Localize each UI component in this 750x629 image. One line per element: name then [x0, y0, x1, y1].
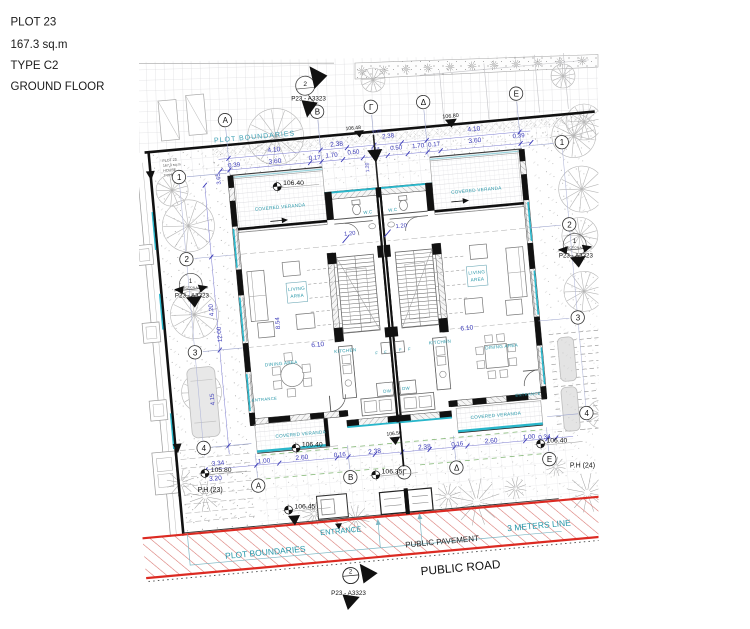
svg-text:B: B	[315, 108, 320, 117]
svg-text:4.10: 4.10	[267, 146, 281, 154]
svg-text:106.40: 106.40	[283, 180, 304, 187]
svg-text:B: B	[348, 473, 353, 482]
svg-text:2: 2	[567, 220, 572, 229]
svg-text:105.80: 105.80	[211, 467, 232, 474]
svg-text:P23 - A3323: P23 - A3323	[291, 95, 326, 102]
svg-text:E: E	[547, 455, 552, 464]
svg-text:0.39: 0.39	[512, 132, 525, 140]
svg-text:2: 2	[184, 255, 189, 264]
svg-text:2.60: 2.60	[295, 454, 309, 462]
svg-text:Γ: Γ	[369, 103, 374, 112]
svg-text:106.45: 106.45	[294, 503, 315, 510]
svg-text:1: 1	[177, 173, 182, 182]
svg-text:4: 4	[202, 444, 207, 453]
svg-text:3.60: 3.60	[468, 137, 482, 145]
svg-text:P23 - A3323: P23 - A3323	[331, 590, 366, 597]
svg-text:12.00: 12.00	[216, 326, 224, 343]
svg-text:3: 3	[193, 348, 198, 357]
svg-text:106.35: 106.35	[382, 468, 403, 475]
svg-text:6.10: 6.10	[311, 341, 325, 349]
svg-text:106.40: 106.40	[547, 437, 568, 444]
svg-text:E: E	[514, 90, 519, 99]
svg-text:4.10: 4.10	[467, 126, 481, 134]
svg-text:DW: DW	[402, 385, 411, 391]
svg-text:0.50: 0.50	[347, 149, 360, 157]
svg-text:P.H (23): P.H (23)	[198, 487, 223, 494]
svg-text:1.70: 1.70	[412, 142, 425, 150]
svg-text:W.C: W.C	[388, 207, 398, 213]
svg-text:A: A	[223, 116, 229, 125]
svg-text:0.50: 0.50	[390, 144, 403, 152]
svg-text:167.3 sq.m: 167.3 sq.m	[11, 39, 68, 51]
svg-text:1.20: 1.20	[364, 162, 371, 172]
svg-text:6.10: 6.10	[460, 324, 474, 332]
svg-text:1.00: 1.00	[522, 433, 535, 441]
svg-text:DW: DW	[383, 388, 392, 394]
svg-text:W.C: W.C	[363, 209, 373, 215]
svg-text:0.16: 0.16	[333, 451, 346, 459]
svg-text:Δ: Δ	[421, 98, 427, 107]
svg-text:8.54: 8.54	[274, 316, 282, 329]
svg-text:Γ: Γ	[402, 468, 407, 477]
svg-text:3.65: 3.65	[216, 173, 223, 185]
svg-text:2: 2	[303, 81, 307, 88]
svg-text:0.39: 0.39	[228, 161, 241, 169]
svg-text:2.38: 2.38	[368, 448, 382, 456]
svg-text:3: 3	[576, 313, 581, 322]
svg-text:4.20: 4.20	[208, 303, 216, 316]
svg-text:P.H (24): P.H (24)	[570, 462, 595, 469]
svg-text:PLOT 23: PLOT 23	[11, 17, 57, 29]
svg-text:0.17: 0.17	[428, 141, 441, 149]
svg-text:2.38: 2.38	[382, 132, 395, 140]
svg-text:0.17: 0.17	[308, 154, 321, 162]
svg-text:1.00: 1.00	[258, 457, 271, 465]
svg-text:2.38: 2.38	[330, 141, 344, 149]
svg-text:1.20: 1.20	[395, 223, 407, 230]
svg-text:1.20: 1.20	[344, 231, 356, 238]
svg-text:3.20: 3.20	[209, 475, 223, 483]
svg-text:4.15: 4.15	[210, 393, 217, 406]
svg-text:A: A	[256, 482, 262, 491]
svg-text:Δ: Δ	[454, 464, 460, 473]
svg-text:0.16: 0.16	[451, 440, 464, 448]
svg-text:1.70: 1.70	[325, 152, 338, 160]
svg-text:TYPE C2: TYPE C2	[11, 60, 59, 72]
svg-text:4: 4	[584, 409, 589, 418]
svg-text:2.60: 2.60	[484, 437, 498, 445]
svg-text:3.60: 3.60	[268, 158, 282, 166]
svg-text:GROUND FLOOR: GROUND FLOOR	[11, 81, 105, 93]
svg-text:106.40: 106.40	[302, 441, 323, 448]
svg-text:2.38: 2.38	[418, 443, 432, 451]
svg-text:1: 1	[560, 138, 565, 147]
